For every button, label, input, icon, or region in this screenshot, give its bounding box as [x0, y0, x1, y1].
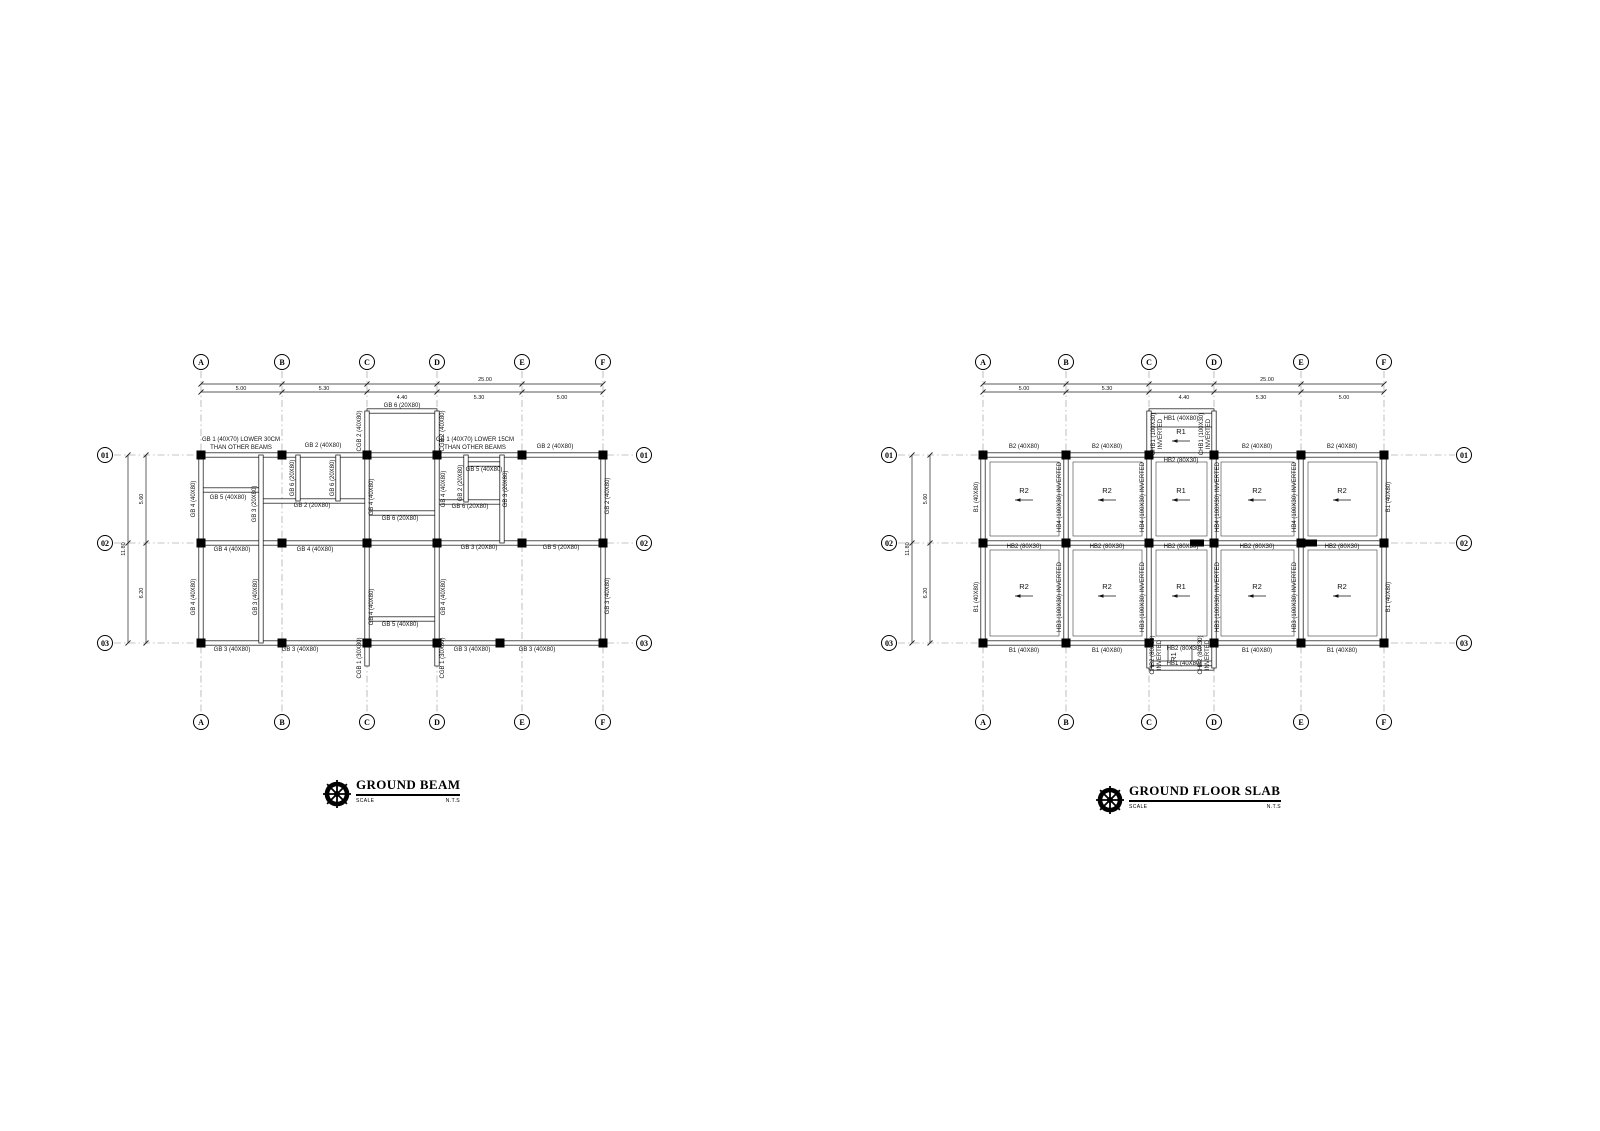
slab-panel-label: R1: [1176, 582, 1186, 591]
grid-bubble-label: B: [279, 358, 285, 367]
beam-label: GB 3 (20X80): [252, 486, 258, 523]
dimension-label: 6.20: [139, 588, 145, 599]
span-arrow-icon: [1098, 498, 1104, 501]
plan-title: GROUND FLOOR SLAB: [1129, 783, 1281, 802]
beam-label: GB 5 (40X80): [382, 622, 419, 628]
grid-bubble-label: E: [519, 718, 524, 727]
span-arrow-icon: [1172, 498, 1178, 501]
beam-label: GB 4 (40X80): [369, 479, 375, 516]
beam-line: [296, 455, 300, 501]
dimension-label: 5.60: [139, 494, 145, 505]
column-marker: [1062, 451, 1071, 460]
beam-label: HB3 (100X30) INVERTED: [1292, 561, 1298, 632]
beam-label: HB4 (100X30) INVERTED: [1057, 461, 1063, 532]
beam-label: GB 3 (40X80): [282, 647, 319, 653]
slab-outline: [1156, 550, 1207, 636]
dimension-label: 5.30: [474, 395, 485, 401]
beam-label: HB3 (100X30) INVERTED: [1215, 561, 1221, 632]
column-marker: [979, 539, 988, 548]
column-marker: [1062, 639, 1071, 648]
beam-label: GB 4 (40X80): [191, 481, 197, 518]
slab-panel-label: R2: [1337, 582, 1347, 591]
column-marker: [518, 539, 527, 548]
dimension-label: 4.40: [397, 395, 408, 401]
slab-outline: [1308, 462, 1377, 536]
beam-label: GB 6 (20X80): [382, 516, 419, 522]
beam-label: B1 (40X80): [1242, 648, 1272, 654]
beam-line: [336, 455, 340, 501]
slab-outline: [1156, 462, 1207, 536]
grid-bubble-label: D: [434, 358, 440, 367]
column-marker: [1380, 539, 1389, 548]
grid-bubble-label: C: [364, 358, 370, 367]
grid-bubble-label: 01: [101, 451, 109, 460]
slab-outline: [990, 550, 1059, 636]
beam-label: HB2 (80X30): [1164, 544, 1199, 550]
beam-label: GB 4 (40X80): [191, 579, 197, 616]
beam-line: [1299, 455, 1303, 643]
beam-label: GB 1 (40X70) LOWER 15CM: [436, 437, 514, 443]
column-marker: [1303, 540, 1317, 547]
beam-label: HB2 (80X30): [1240, 544, 1275, 550]
beam-line: [983, 641, 1384, 645]
slab-panel-label: R2: [1019, 582, 1029, 591]
beam-label: THAN OTHER BEAMS: [210, 445, 272, 451]
beam-label: B1 (40X80): [1327, 648, 1357, 654]
dimension-label: 5.00: [1339, 395, 1350, 401]
beam-label: GB 2 (40X80): [537, 444, 574, 450]
dimension-label: 5.00: [1019, 386, 1030, 392]
slab-outline: [1221, 462, 1294, 536]
ground-beam-titleblock: GROUND BEAM SCALE N.T.S: [320, 777, 460, 811]
column-marker: [363, 451, 372, 460]
beam-label: GB 3 (20X80): [461, 545, 498, 551]
beam-label: THAN OTHER BEAMS: [444, 445, 506, 451]
beam-label: GB 3 (40X80): [605, 578, 611, 615]
beam-label: GB 2 (20X80): [294, 503, 331, 509]
beam-label: GB 3 (40X80): [519, 647, 556, 653]
beam-line: [367, 409, 437, 413]
span-arrow-icon: [1015, 594, 1021, 597]
beam-label: HB2 (80X30): [1164, 458, 1199, 464]
slab-panel-label: R2: [1252, 582, 1262, 591]
beam-label: B1 (40X80): [1386, 482, 1392, 512]
grid-bubble-label: 02: [1460, 539, 1468, 548]
grid-bubble-label: F: [601, 358, 606, 367]
dimension-label: 11.80: [121, 542, 127, 555]
beam-label: GB 4 (40X80): [214, 547, 251, 553]
beam-label: GB 2 (40X80): [305, 443, 342, 449]
beam-label: CGB 1 (30X80): [440, 637, 446, 678]
beam-label: GB 4 (40X80): [441, 471, 447, 508]
scale-label: SCALE: [356, 798, 374, 804]
column-marker: [197, 639, 206, 648]
grid-bubble-label: 01: [885, 451, 893, 460]
column-marker: [363, 639, 372, 648]
beam-line: [981, 455, 985, 643]
beam-label: GB 3 (20X80): [503, 471, 509, 508]
grid-bubble-label: B: [1063, 358, 1069, 367]
beam-line: [259, 455, 263, 643]
beam-label: HB4 (100X30) INVERTED: [1215, 461, 1221, 532]
beam-label: HB2 (80X30): [1325, 544, 1360, 550]
grid-bubble-label: A: [198, 358, 204, 367]
beam-label: HB4 (100X30) INVERTED: [1140, 461, 1146, 532]
column-marker: [1210, 451, 1219, 460]
grid-bubble-label: 02: [101, 539, 109, 548]
dimension-label: 5.30: [1102, 386, 1113, 392]
beam-label: HB2 (80X30): [1167, 646, 1202, 652]
slab-panel-label: R2: [1102, 582, 1112, 591]
drawing-canvas: AABBCCDDEEFF01010202030325.005.005.304.4…: [0, 0, 1600, 1131]
beam-label: B1 (40X80): [1386, 582, 1392, 612]
span-arrow-icon: [1333, 498, 1339, 501]
beam-label: B2 (40X80): [1327, 444, 1357, 450]
beam-label: HB2 (80X30): [1090, 544, 1125, 550]
grid-bubble-label: C: [1146, 358, 1152, 367]
column-marker: [433, 539, 442, 548]
grid-bubble-label: D: [1211, 358, 1217, 367]
column-marker: [599, 451, 608, 460]
grid-bubble-label: C: [1146, 718, 1152, 727]
column-marker: [599, 539, 608, 548]
slab-panel-label: R2: [1019, 486, 1029, 495]
beam-label: B1 (40X80): [974, 582, 980, 612]
beam-label: GB 5 (40X80): [210, 495, 247, 501]
span-arrow-icon: [1172, 439, 1178, 442]
column-marker: [278, 451, 287, 460]
grid-bubble-label: 03: [885, 639, 893, 648]
span-arrow-icon: [1098, 594, 1104, 597]
slab-panel-label: R1: [1176, 427, 1186, 436]
beam-label: GB 4 (40X80): [297, 547, 334, 553]
grid-bubble-label: 03: [1460, 639, 1468, 648]
beam-line: [983, 453, 1384, 457]
dimension-label: 5.00: [557, 395, 568, 401]
beam-label: GB 3 (40X80): [454, 647, 491, 653]
beam-label: CHB1 (100X30): [1151, 413, 1157, 455]
grid-bubble-label: A: [980, 718, 986, 727]
slab-outline: [1308, 550, 1377, 636]
beam-label: GB 1 (40X70) LOWER 30CM: [202, 437, 280, 443]
slab-panel-label: R2: [1337, 486, 1347, 495]
beam-label: GB 6 (20X80): [290, 460, 296, 497]
beam-label: HB1 (40X80): [1164, 416, 1199, 422]
column-marker: [197, 451, 206, 460]
column-marker: [1297, 451, 1306, 460]
grid-bubble-label: D: [1211, 718, 1217, 727]
beam-label: GB 6 (20X80): [452, 504, 489, 510]
beam-label: GB 4 (40X80): [441, 579, 447, 616]
column-marker: [1380, 639, 1389, 648]
beam-line: [367, 617, 437, 621]
slab-panel-label: R2: [1252, 486, 1262, 495]
grid-bubble-label: C: [364, 718, 370, 727]
beam-line: [1149, 409, 1214, 413]
column-marker: [197, 539, 206, 548]
ship-wheel-icon: [1093, 783, 1127, 817]
grid-bubble-label: 03: [101, 639, 109, 648]
scale-label: SCALE: [1129, 804, 1147, 810]
grid-bubble-label: E: [519, 358, 524, 367]
beam-label: HB3 (100X30) INVERTED: [1140, 561, 1146, 632]
beam-label: GB 3 (40X80): [253, 579, 259, 616]
dimension-label: 5.30: [319, 386, 330, 392]
beam-label: CHB1 (100X30): [1199, 413, 1205, 455]
beam-label: B1 (40X80): [974, 482, 980, 512]
column-marker: [363, 539, 372, 548]
slab-outline: [1073, 462, 1142, 536]
column-marker: [1380, 451, 1389, 460]
beam-label: INVERTED: [1158, 418, 1164, 449]
span-arrow-icon: [1015, 498, 1021, 501]
beam-label: INVERTED: [1157, 639, 1163, 670]
column-marker: [1145, 539, 1154, 548]
column-marker: [518, 451, 527, 460]
dimension-label: 5.60: [923, 494, 929, 505]
column-marker: [1210, 539, 1219, 548]
grid-bubble-label: E: [1298, 358, 1303, 367]
slab-panel-label: R1: [1169, 652, 1178, 662]
column-marker: [1062, 539, 1071, 548]
grid-bubble-label: B: [1063, 718, 1069, 727]
dimension-label: 25.00: [1260, 377, 1274, 383]
beam-label: B2 (40X80): [1242, 444, 1272, 450]
grid-bubble-label: 03: [640, 639, 648, 648]
beam-label: HB3 (100X30) INVERTED: [1057, 561, 1063, 632]
span-arrow-icon: [1333, 594, 1339, 597]
ground-floor-slab-titleblock: GROUND FLOOR SLAB SCALE N.T.S: [1093, 783, 1281, 817]
grid-bubble-label: F: [1382, 718, 1387, 727]
dimension-label: 5.00: [236, 386, 247, 392]
beam-label: GB 2 (20X80): [458, 465, 464, 502]
beam-label: CGB 2 (40X80): [357, 410, 363, 451]
beam-label: GB 6 (20X80): [384, 403, 421, 409]
grid-bubble-label: 01: [640, 451, 648, 460]
slab-panel-label: R1: [1176, 486, 1186, 495]
nts-label: N.T.S: [1267, 804, 1281, 810]
grid-bubble-label: F: [1382, 358, 1387, 367]
grid-bubble-label: B: [279, 718, 285, 727]
beam-label: B1 (40X80): [1092, 648, 1122, 654]
beam-label: INVERTED: [1206, 418, 1212, 449]
grid-bubble-label: E: [1298, 718, 1303, 727]
ship-wheel-icon: [320, 777, 354, 811]
column-marker: [278, 539, 287, 548]
column-marker: [599, 639, 608, 648]
span-arrow-icon: [1248, 498, 1254, 501]
beam-label: CGB 1 (30X80): [357, 637, 363, 678]
beam-label: B1 (40X80): [1009, 648, 1039, 654]
beam-line: [199, 455, 203, 643]
beam-line: [1064, 455, 1068, 643]
grid-bubble-label: A: [198, 718, 204, 727]
beam-label: GB 3 (40X80): [214, 647, 251, 653]
dimension-label: 25.00: [478, 377, 492, 383]
slab-panel-label: R2: [1102, 486, 1112, 495]
beam-label: CHB2 (80X30): [1150, 635, 1156, 674]
beam-label: GB 5 (40X80): [466, 467, 503, 473]
nts-label: N.T.S: [446, 798, 460, 804]
column-marker: [1297, 639, 1306, 648]
dimension-label: 11.80: [905, 542, 911, 555]
span-arrow-icon: [1248, 594, 1254, 597]
beam-label: CHB2 (80X30): [1198, 635, 1204, 674]
slab-outline: [990, 462, 1059, 536]
beam-label: HB4 (100X30) INVERTED: [1292, 461, 1298, 532]
grid-bubble-label: 02: [885, 539, 893, 548]
beam-label: GB 5 (20X80): [543, 545, 580, 551]
grid-bubble-label: F: [601, 718, 606, 727]
beam-line: [367, 511, 437, 515]
grid-bubble-label: D: [434, 718, 440, 727]
grid-bubble-label: A: [980, 358, 986, 367]
grid-bubble-label: 01: [1460, 451, 1468, 460]
plan-title: GROUND BEAM: [356, 777, 460, 796]
slab-outline: [1073, 550, 1142, 636]
dimension-label: 6.20: [923, 588, 929, 599]
beam-label: INVERTED: [1205, 639, 1211, 670]
beam-label: GB 6 (20X80): [330, 460, 336, 497]
span-arrow-icon: [1172, 594, 1178, 597]
beam-line: [466, 462, 502, 466]
beam-label: B2 (40X80): [1009, 444, 1039, 450]
column-marker: [496, 639, 505, 648]
column-marker: [979, 639, 988, 648]
dimension-label: 4.40: [1179, 395, 1190, 401]
drawing-sheet: { "plans": [ { "name": "GROUND BEAM", "s…: [0, 0, 1600, 1131]
column-marker: [979, 451, 988, 460]
dimension-label: 5.30: [1256, 395, 1267, 401]
grid-bubble-label: 02: [640, 539, 648, 548]
beam-label: GB 2 (40X80): [605, 478, 611, 515]
beam-label: CGB 2 (40X80): [440, 410, 446, 451]
beam-label: GB 4 (40X80): [369, 589, 375, 626]
slab-outline: [1221, 550, 1294, 636]
beam-label: B2 (40X80): [1092, 444, 1122, 450]
beam-label: HB2 (80X30): [1007, 544, 1042, 550]
beam-line: [464, 455, 468, 502]
